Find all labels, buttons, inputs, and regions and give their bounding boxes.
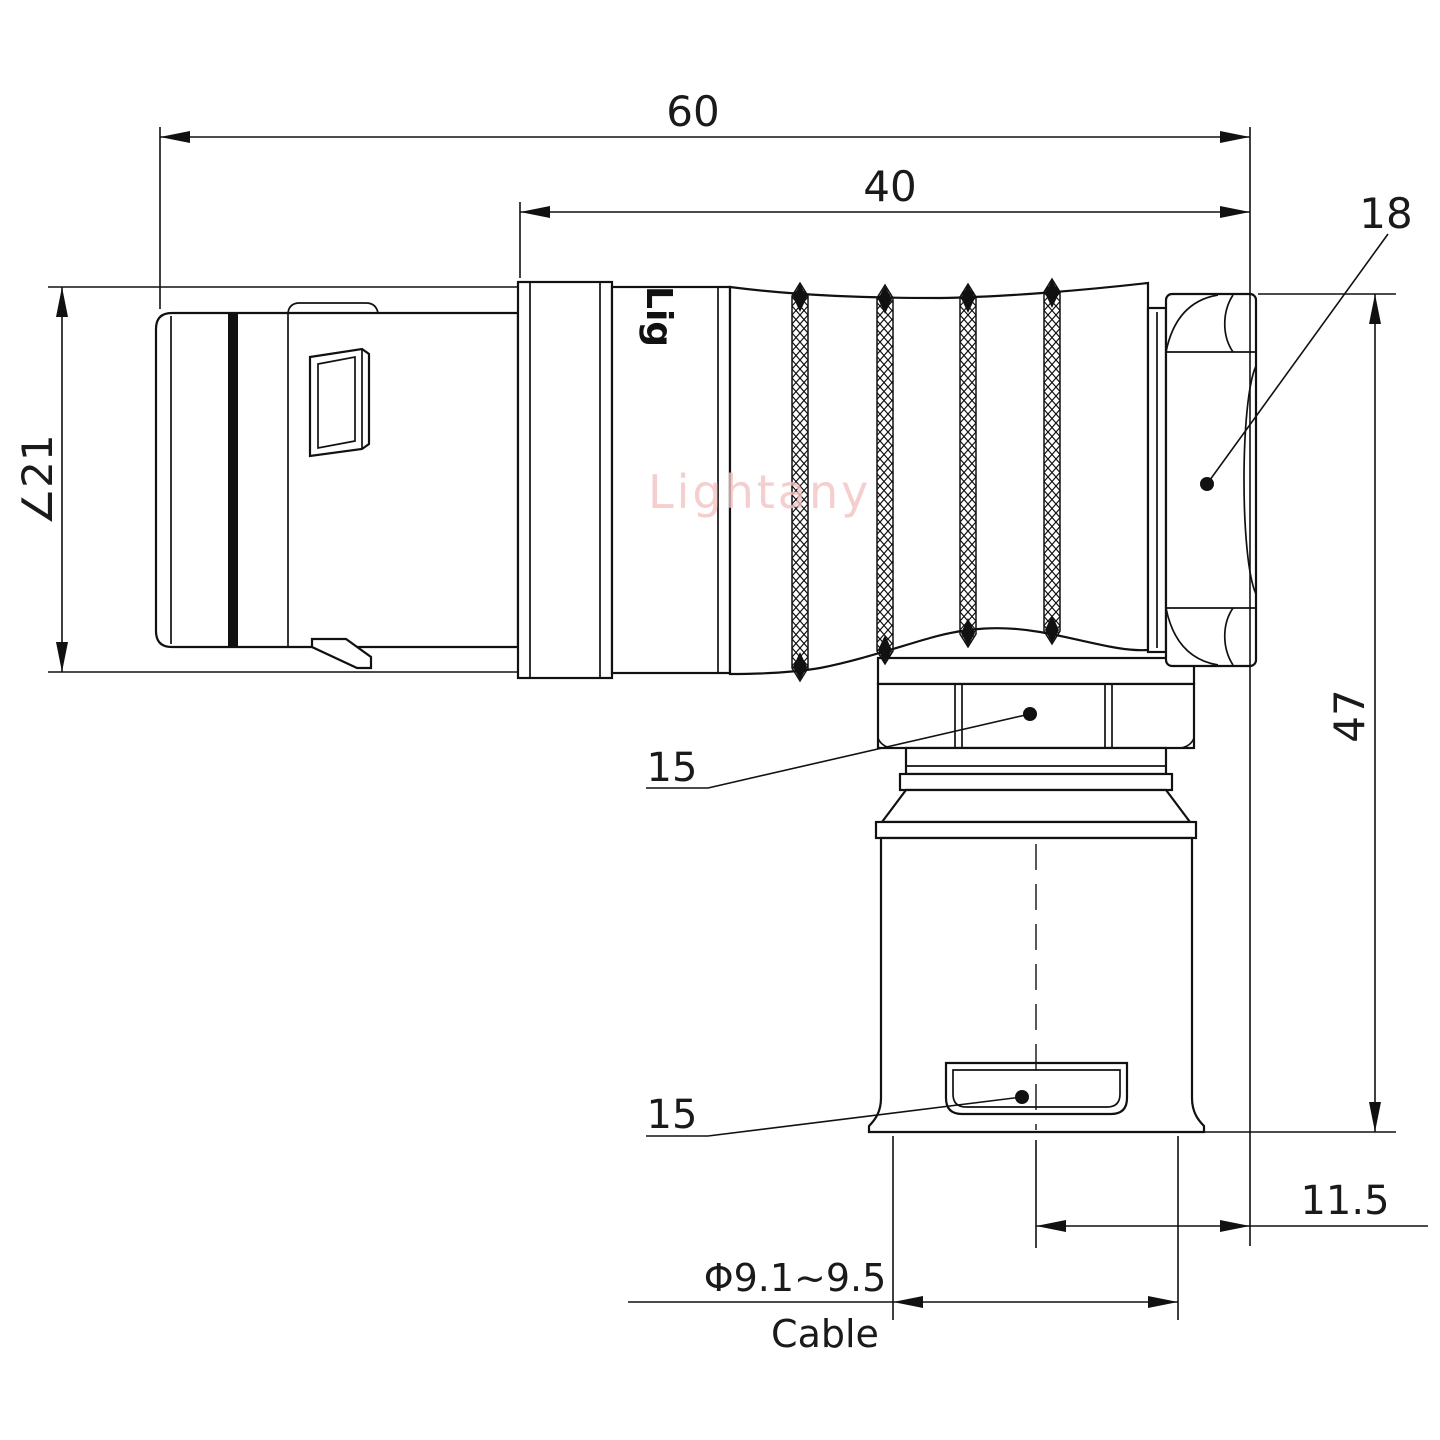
neck-ring-2 bbox=[900, 774, 1172, 790]
dim-cable-text-label: Cable bbox=[771, 1312, 879, 1356]
leader-elbow-nut-label: 15 bbox=[647, 745, 698, 791]
latch-bump bbox=[288, 303, 378, 313]
dim-rear-length: 40 bbox=[520, 162, 1250, 278]
cable-sleeve-lip bbox=[876, 822, 1196, 838]
dim-rear-length-label: 40 bbox=[863, 162, 916, 211]
elbow-collar bbox=[878, 658, 1194, 684]
dim-axis-offset-label: 11.5 bbox=[1300, 1178, 1389, 1224]
engraving-text: Lig bbox=[638, 286, 679, 347]
sleeve-black-band bbox=[228, 313, 238, 647]
neck-ring-1 bbox=[906, 748, 1166, 774]
elbow-lower-body bbox=[869, 658, 1204, 1132]
leader-cable-clamp-label: 15 bbox=[647, 1092, 698, 1138]
dimension-annotations: 60 40 18 ∠21 bbox=[13, 87, 1428, 1356]
leader-coupling-nut-label: 18 bbox=[1359, 189, 1412, 238]
dim-overall-length-label: 60 bbox=[666, 87, 719, 136]
watermark: Lightany bbox=[648, 465, 871, 519]
dim-axis-offset: 11.5 bbox=[1036, 1140, 1428, 1248]
connector-technical-drawing: Lig Lightany bbox=[0, 0, 1440, 1440]
drawing-page: Lig Lightany bbox=[0, 0, 1440, 1440]
key-ring bbox=[518, 282, 612, 678]
dim-overall-length: 60 bbox=[160, 87, 1250, 309]
dim-cable-diameter: Φ9.1~9.5 Cable bbox=[628, 1136, 1178, 1356]
neck-flare bbox=[882, 790, 1190, 822]
dim-cable-diameter-label: Φ9.1~9.5 bbox=[704, 1256, 887, 1300]
dim-overall-height-label: 47 bbox=[1325, 689, 1374, 742]
dim-sleeve-diameter-label: ∠21 bbox=[13, 434, 62, 525]
